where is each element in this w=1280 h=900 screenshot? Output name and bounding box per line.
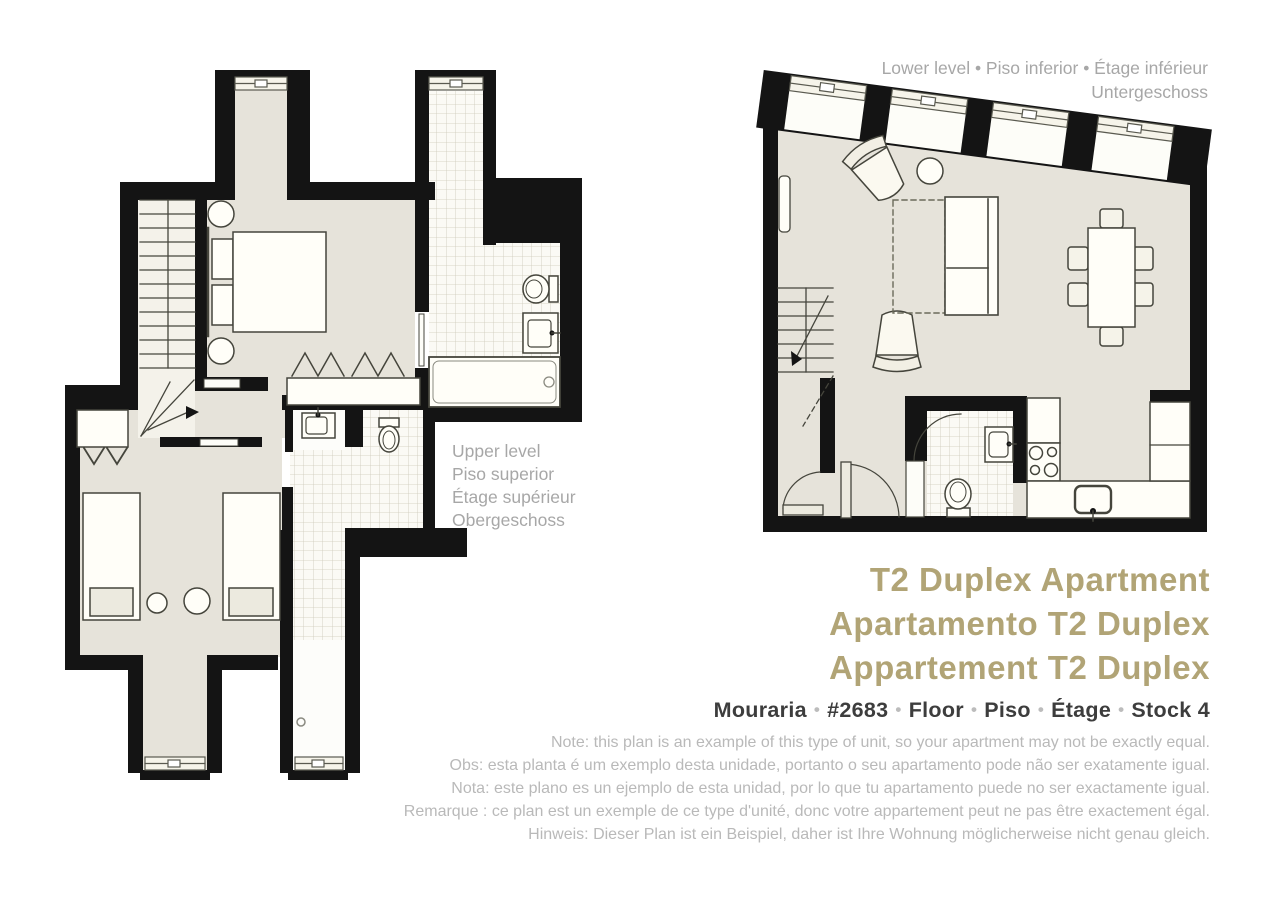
nightstand-top: [208, 201, 234, 227]
dining-chair: [1068, 283, 1088, 306]
stool-small: [147, 593, 167, 613]
location-neighborhood: Mouraria: [714, 698, 807, 722]
upper-level-label-fr: Étage supérieur: [452, 486, 576, 509]
toilet-2: [379, 418, 399, 452]
dining-chair: [1100, 327, 1123, 346]
separator-dot: •: [964, 700, 984, 719]
stairs-floor: [138, 198, 195, 438]
door-bottom-right: [295, 757, 343, 770]
stool-large: [184, 588, 210, 614]
separator-dot: •: [888, 700, 908, 719]
sink-1: [523, 313, 560, 353]
hall-nook-floor: [235, 88, 287, 200]
left-corridor-floor: [143, 655, 207, 773]
note-fr: Remarque : ce plan est un exemple de ce …: [404, 800, 1210, 823]
dining-table: [1088, 228, 1135, 327]
bath1-door-leaf: [419, 314, 424, 366]
separator-dot: •: [1111, 700, 1131, 719]
stove: [1027, 443, 1060, 481]
separator-dot: •: [807, 700, 827, 719]
facade-window-4: [1092, 116, 1174, 180]
door-leaf-2: [841, 462, 851, 518]
bath2-door-leaf: [906, 461, 924, 517]
floor-word-pt: Piso: [984, 698, 1031, 722]
dining-chair: [1100, 209, 1123, 228]
facade-window-3: [986, 103, 1068, 167]
right-corridor-floor: [293, 640, 345, 773]
sliding-door-leaf-2: [200, 439, 238, 446]
upper-level-label-de: Obergeschoss: [452, 509, 576, 532]
upper-level-floor-plan: [65, 70, 582, 780]
window-top-bath: [429, 77, 483, 90]
title-en: T2 Duplex Apartment: [829, 558, 1210, 602]
upper-level-label-pt: Piso superior: [452, 463, 576, 486]
nightstand-bottom: [208, 338, 234, 364]
note-en: Note: this plan is an example of this ty…: [404, 731, 1210, 754]
sofa: [945, 197, 998, 315]
separator-dot: •: [1031, 700, 1051, 719]
note-es: Nota: este plano es un ejemplo de esta u…: [404, 777, 1210, 800]
title-pt: Apartamento T2 Duplex: [829, 602, 1210, 646]
disclaimer-notes: Note: this plan is an example of this ty…: [404, 731, 1210, 846]
upper-level-label: Upper level Piso superior Étage supérieu…: [452, 440, 576, 532]
single-bed-left: [83, 493, 140, 620]
sink-3: [985, 427, 1016, 462]
bathtub: [429, 357, 560, 407]
note-pt: Obs: esta planta é um exemplo desta unid…: [404, 754, 1210, 777]
lower-level-label: Lower level • Piso inferior • Étage infé…: [882, 56, 1208, 104]
door-leaf-1: [783, 505, 823, 515]
lower-level-floor-plan: [756, 70, 1212, 532]
unit-number: #2683: [827, 698, 888, 722]
upper-level-label-en: Upper level: [452, 440, 576, 463]
corridor-tiles: [293, 528, 345, 640]
kitchen-cabinet: [1027, 398, 1060, 443]
side-table: [917, 158, 943, 184]
toilet-3: [945, 479, 971, 517]
sliding-door-leaf-1: [204, 379, 240, 388]
facade-window-1: [784, 76, 866, 140]
radiator: [779, 176, 790, 232]
bath1-corridor-tiles: [429, 91, 483, 243]
title-fr: Appartement T2 Duplex: [829, 646, 1210, 690]
dining-chair: [1133, 247, 1153, 270]
dining-chair: [1068, 247, 1088, 270]
note-de: Hinweis: Dieser Plan ist ein Beispiel, d…: [404, 823, 1210, 846]
window-bottom-left: [145, 757, 205, 770]
floor-plan-page: Lower level • Piso inferior • Étage infé…: [0, 0, 1280, 900]
window-top-left: [235, 77, 287, 90]
floor-number: Stock 4: [1131, 698, 1210, 722]
kitchen-counter-right: [1150, 402, 1190, 481]
lower-level-label-line1: Lower level • Piso inferior • Étage infé…: [882, 56, 1208, 80]
toilet-1: [523, 275, 558, 303]
dining-chair: [1133, 283, 1153, 306]
sink-2: [302, 408, 335, 438]
lower-level-label-line2: Untergeschoss: [882, 80, 1208, 104]
apartment-title: T2 Duplex Apartment Apartamento T2 Duple…: [829, 558, 1210, 690]
floor-word-en: Floor: [909, 698, 964, 722]
single-bed-right: [223, 493, 280, 620]
location-line: Mouraria•#2683•Floor•Piso•Étage•Stock 4: [714, 698, 1210, 723]
floor-word-fr: Étage: [1051, 698, 1111, 722]
